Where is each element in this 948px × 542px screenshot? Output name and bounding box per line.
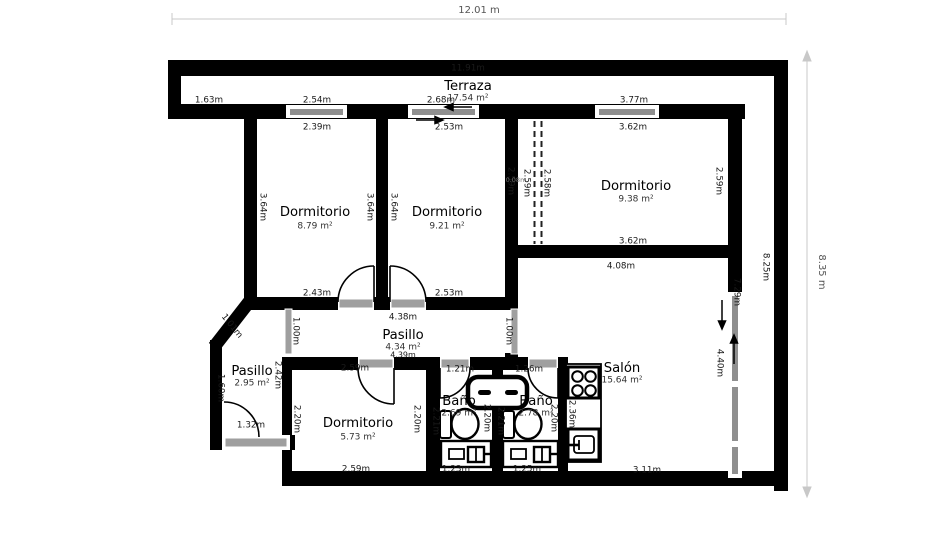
measurement-label: 1.26m bbox=[515, 365, 543, 375]
measurement-label: 1.63m bbox=[195, 96, 223, 106]
room-labels-layer: Terraza17.54 m²Dormitorio8.79 m²Dormitor… bbox=[231, 79, 671, 443]
room-name-label: Dormitorio bbox=[280, 205, 350, 220]
measurement-label: 2.21m bbox=[431, 407, 441, 435]
room-area-label: 5.73 m² bbox=[340, 433, 376, 443]
measurement-label: 2.53m bbox=[435, 289, 463, 299]
room-name-label: Terraza bbox=[443, 79, 492, 94]
measurement-label: 3.77m bbox=[620, 96, 648, 106]
room-name-label: Baño bbox=[442, 394, 476, 409]
measurement-label: 8.25m bbox=[761, 253, 771, 281]
measurement-label: 1.60m bbox=[216, 374, 226, 402]
faucet-icon bbox=[505, 390, 518, 395]
measurement-label: 2.21m bbox=[496, 407, 506, 435]
measurement-label: 2.20m bbox=[292, 405, 302, 433]
door-threshold bbox=[391, 299, 425, 308]
room-area-label: 2.95 m² bbox=[234, 379, 270, 389]
room-area-label: 9.21 m² bbox=[429, 222, 465, 232]
door-threshold bbox=[339, 299, 373, 308]
measurement-label: 1.23m bbox=[442, 465, 470, 475]
measurement-label: 1.00m bbox=[291, 317, 301, 345]
measurement-label: 2.59m bbox=[341, 364, 369, 374]
measurement-label: 3.62m bbox=[619, 237, 647, 247]
measurement-label: 2.59m bbox=[342, 465, 370, 475]
measurement-label: 1.00m bbox=[504, 317, 514, 345]
measurement-label: 7.29m bbox=[732, 278, 742, 306]
dashed-partition bbox=[535, 121, 542, 244]
room-name-label: Pasillo bbox=[382, 328, 423, 343]
measurement-label: 3.11m bbox=[633, 466, 661, 476]
measurement-label: 1.32m bbox=[237, 421, 265, 431]
faucet-icon bbox=[478, 390, 491, 395]
measurement-label: 4.38m bbox=[389, 313, 417, 323]
measurement-label: 2.68m bbox=[427, 96, 455, 106]
room-area-label: 2.69 m² bbox=[441, 409, 477, 419]
measurement-label: 3.64m bbox=[365, 193, 375, 221]
measurement-label: 2.54m bbox=[303, 96, 331, 106]
measurement-label: 2.36m bbox=[567, 400, 577, 428]
measurement-label: 2.59m bbox=[522, 169, 532, 197]
measurement-label: 2.43m bbox=[303, 289, 331, 299]
measurement-label: 2.39m bbox=[303, 123, 331, 133]
measurement-label: 2.20m bbox=[549, 404, 559, 432]
measurement-label: 2.59m bbox=[714, 167, 724, 195]
room-name-label: Dormitorio bbox=[412, 205, 482, 220]
measurement-label: 3.64m bbox=[258, 193, 268, 221]
measurement-label: 2.20m bbox=[482, 404, 492, 432]
shower bbox=[503, 441, 558, 467]
measurement-label: 2.20m bbox=[412, 405, 422, 433]
floorplan-canvas: Terraza17.54 m²Dormitorio8.79 m²Dormitor… bbox=[0, 0, 948, 542]
terraza-window bbox=[599, 109, 655, 115]
entrance-door-arc bbox=[224, 402, 259, 437]
measurement-label: 4.08m bbox=[607, 262, 635, 272]
measurement-label: 2.58m bbox=[542, 169, 552, 197]
room-area-label: 9.38 m² bbox=[618, 195, 654, 205]
room-name-label: Dormitorio bbox=[323, 416, 393, 431]
measurement-label: 3.62m bbox=[619, 123, 647, 133]
room-name-label: Dormitorio bbox=[601, 179, 671, 194]
room-name-label: Pasillo bbox=[231, 364, 272, 379]
measurement-label: 11.91m bbox=[451, 64, 485, 74]
direction-arrows bbox=[416, 104, 738, 365]
measurement-label: 2.42m bbox=[273, 361, 283, 389]
entrance-door-leaf bbox=[225, 438, 287, 447]
measurement-label: 8.35 m bbox=[816, 254, 827, 289]
measurement-label: 2.53m bbox=[435, 123, 463, 133]
washbasin bbox=[468, 377, 527, 408]
measurement-label: 12.01 m bbox=[458, 5, 500, 16]
terraza-window bbox=[290, 109, 343, 115]
measurement-label: 4.39m bbox=[390, 351, 416, 360]
room-name-label: Baño bbox=[519, 394, 553, 409]
floorplan-svg: Terraza17.54 m²Dormitorio8.79 m²Dormitor… bbox=[0, 0, 948, 542]
shower bbox=[441, 441, 492, 467]
measurement-label: 1.21m bbox=[446, 365, 474, 375]
room-area-label: 8.79 m² bbox=[297, 222, 333, 232]
measurement-label: 1.25m bbox=[513, 465, 541, 475]
terraza-window bbox=[412, 109, 475, 115]
room-name-label: Salón bbox=[604, 360, 641, 376]
measurement-label: 4.40m bbox=[715, 349, 725, 377]
measurement-label: 3.64m bbox=[389, 193, 399, 221]
room-area-label: 15.64 m² bbox=[601, 376, 642, 386]
